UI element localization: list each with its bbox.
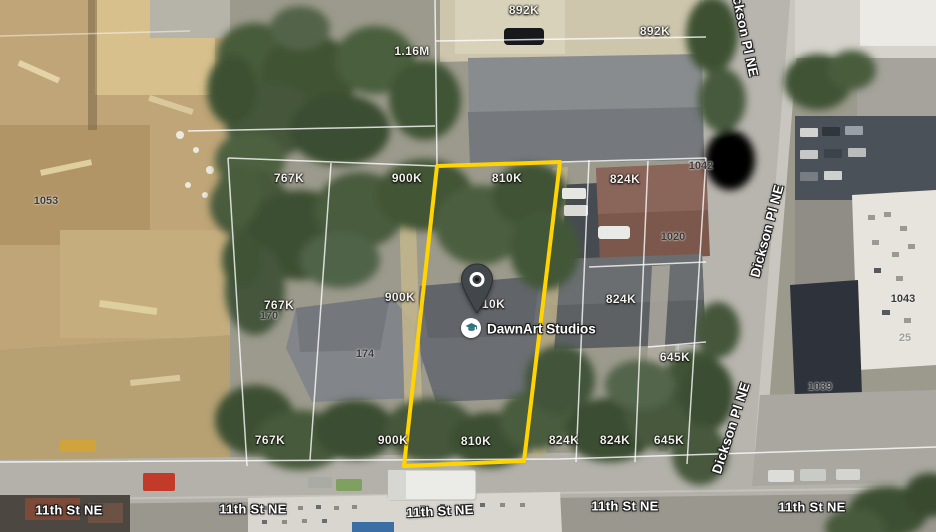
construction-site-area	[0, 0, 243, 466]
graduation-cap-icon	[465, 322, 478, 335]
building-1043	[852, 190, 936, 370]
black-suv	[504, 28, 544, 45]
satellite-map[interactable]: 892K 892K 1.16M 767K 900K 810K 824K 767K…	[0, 0, 936, 532]
red-excavator	[143, 473, 175, 491]
poi-marker[interactable]	[461, 318, 481, 338]
poi-name-label[interactable]: DawnArt Studios	[487, 322, 596, 337]
gravel-yard	[440, 0, 700, 62]
place-pin[interactable]	[460, 263, 494, 315]
